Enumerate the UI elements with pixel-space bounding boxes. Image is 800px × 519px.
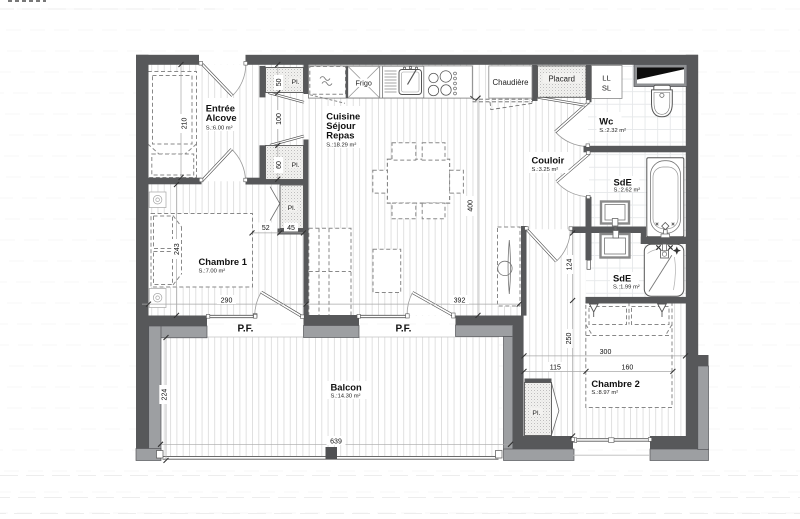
- svg-text:Pl.: Pl.: [288, 205, 296, 212]
- svg-text:SdE: SdE: [613, 273, 631, 284]
- svg-text:S.:2.32 m²: S.:2.32 m²: [599, 128, 626, 134]
- svg-text:400: 400: [467, 200, 474, 212]
- svg-text:S.:14.30 m²: S.:14.30 m²: [331, 394, 361, 400]
- svg-text:P.F.: P.F.: [238, 324, 254, 335]
- svg-text:45: 45: [287, 225, 295, 232]
- svg-text:P.F.: P.F.: [396, 324, 412, 335]
- svg-text:Couloir: Couloir: [532, 155, 565, 166]
- svg-text:Pl.: Pl.: [532, 410, 540, 417]
- svg-text:Placard: Placard: [548, 74, 574, 83]
- svg-text:115: 115: [550, 364, 561, 371]
- svg-text:60: 60: [276, 161, 283, 169]
- svg-text:S.:8.97 m²: S.:8.97 m²: [591, 390, 618, 396]
- svg-text:Alcove: Alcove: [206, 112, 237, 123]
- svg-text:Wc: Wc: [599, 116, 613, 127]
- svg-text:S.:3.25 m²: S.:3.25 m²: [532, 167, 559, 173]
- svg-text:160: 160: [622, 364, 634, 371]
- svg-text:224: 224: [161, 389, 168, 401]
- svg-text:300: 300: [600, 349, 612, 356]
- svg-text:210: 210: [182, 117, 189, 129]
- svg-text:S.:6.00 m²: S.:6.00 m²: [206, 125, 233, 131]
- svg-text:LL: LL: [602, 74, 610, 83]
- svg-text:243: 243: [174, 243, 181, 255]
- svg-text:Pl.: Pl.: [292, 79, 300, 86]
- svg-text:639: 639: [330, 439, 342, 446]
- svg-text:290: 290: [221, 297, 233, 304]
- svg-text:50: 50: [276, 78, 283, 86]
- svg-text:S.:18.29 m²: S.:18.29 m²: [326, 142, 356, 148]
- svg-text:Pl.: Pl.: [292, 162, 300, 169]
- svg-text:SdE: SdE: [614, 177, 632, 188]
- svg-text:S.:2.62 m²: S.:2.62 m²: [614, 187, 641, 193]
- svg-text:Chambre 1: Chambre 1: [199, 256, 247, 267]
- svg-text:124: 124: [567, 259, 574, 271]
- svg-text:52: 52: [262, 225, 270, 232]
- svg-text:Chambre 2: Chambre 2: [591, 378, 639, 389]
- svg-text:250: 250: [566, 333, 573, 345]
- svg-text:S.:1.99 m²: S.:1.99 m²: [613, 285, 640, 291]
- svg-text:Balcon: Balcon: [331, 382, 363, 393]
- svg-text:SL: SL: [602, 84, 611, 93]
- svg-text:392: 392: [454, 297, 466, 304]
- svg-text:S.:7.00 m²: S.:7.00 m²: [199, 269, 226, 275]
- svg-text:Frigo: Frigo: [356, 78, 372, 87]
- svg-text:Repas: Repas: [326, 129, 354, 140]
- svg-text:Chaudière: Chaudière: [493, 78, 529, 87]
- svg-text:100: 100: [276, 113, 283, 125]
